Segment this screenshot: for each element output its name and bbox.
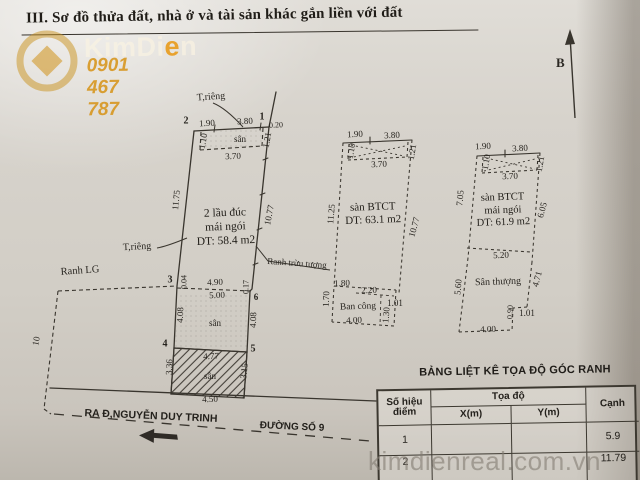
right-plot-area: DT: 61.9 m2 (461, 216, 545, 232)
measurement-label: 0.04 (180, 275, 189, 289)
measurement-label: 4.50 (202, 394, 218, 405)
measurement-label: 1.90 (347, 129, 363, 140)
table-header-y: Y(m) (511, 405, 586, 424)
point-number: 2 (184, 116, 189, 127)
measurement-label: 7.05 (454, 190, 465, 207)
measurement-label: 4.90 (207, 277, 223, 288)
ranh-lg-label: Ranh LG (60, 264, 99, 278)
point-number: 3 (168, 275, 173, 286)
measurement-label: 3.80 (384, 130, 400, 141)
measurement-label: 1.21 (406, 143, 419, 160)
north-arrow-icon (565, 29, 575, 118)
measurement-label: 1.01 (519, 308, 535, 318)
measurement-label: 0.20 (269, 120, 283, 130)
logo-text-accent: e (164, 31, 180, 61)
measurement-label: 11.25 (325, 204, 337, 225)
measurement-label: 3.15 (238, 363, 250, 380)
measurement-label: 1.70 (321, 291, 332, 307)
table-header-x: X(m) (431, 406, 511, 425)
measurement-label: 1.10 (345, 142, 358, 159)
measurement-label: 4.08 (248, 312, 259, 328)
table-header-edge: Cạnh (586, 387, 639, 423)
measurement-label: 0.90 (505, 305, 514, 319)
measurement-label: sân (209, 318, 221, 328)
trieng-left-label: T,riêng (123, 241, 152, 253)
measurement-label: sân (234, 134, 246, 144)
table-header-point: Số hiệu điểm (378, 390, 432, 426)
site-watermark: kimdienreal.com.vn (368, 446, 601, 477)
north-indicator-label: B (556, 55, 565, 71)
scanned-land-survey-document: III. Sơ đồ thửa đất, nhà ở và tài sản kh… (0, 0, 640, 480)
measurement-label: 4.00 (480, 324, 496, 335)
measurement-label: 3.70 (502, 171, 518, 182)
measurement-label: 4.00 (346, 315, 362, 326)
road-name-secondary: ĐƯỜNG SỐ 9 (259, 420, 324, 434)
road-name-main: RA Đ,NGUYỄN DUY TRINH (84, 407, 217, 425)
measurement-label: sân (204, 371, 216, 381)
middle-plot-area: DT: 63.1 m2 (330, 213, 416, 229)
san-thuong-label: Sân thượng (475, 276, 521, 289)
point-number: 6 (254, 292, 259, 302)
ranh-truu-tuong-label: Ranh trừu tượng (267, 256, 327, 270)
measurement-label: 3.70 (371, 159, 387, 170)
measurement-label: 1.90 (475, 141, 491, 152)
measurement-label: 4.71 (530, 270, 544, 288)
right-plot-description: sàn BTCT mái ngói DT: 61.9 m2 (460, 191, 545, 232)
measurement-label: 1.21 (534, 155, 547, 172)
page-title: III. Sơ đồ thửa đất, nhà ở và tài sản kh… (26, 3, 476, 27)
measurement-label: 0.17 (242, 280, 251, 294)
point-number: 1 (260, 112, 265, 123)
point-number: 5 (251, 344, 256, 355)
measurement-label: 4.77 (203, 351, 219, 362)
logo-text-part2: n (180, 31, 198, 61)
measurement-label: 3.80 (237, 116, 253, 127)
measurement-label: 10 (30, 336, 41, 347)
ban-cong-label: Ban công (340, 301, 376, 312)
measurement-label: 5.20 (493, 250, 509, 261)
measurement-label: 3.36 (164, 359, 175, 375)
measurement-label: 11.75 (170, 190, 182, 211)
coordinate-table-title: BẢNG LIỆT KÊ TỌA ĐỘ GÓC RANH (395, 363, 635, 379)
left-plot-description: 2 lầu đúc mái ngói DT: 58.4 m2 (182, 206, 268, 250)
measurement-label: 2.20 (361, 285, 377, 296)
measurement-label: 1.80 (334, 278, 350, 289)
measurement-label: 1.10 (197, 132, 210, 149)
measurement-label: 1.90 (199, 118, 215, 129)
measurement-label: 5.00 (209, 290, 225, 301)
measurement-label: 1.21 (261, 131, 274, 148)
dashed-right-plot (459, 153, 540, 332)
measurement-label: 3.80 (512, 143, 528, 154)
middle-plot-description: sàn BTCT DT: 63.1 m2 (330, 200, 417, 229)
logo-phone-number: 0901 467 787 (86, 55, 129, 122)
left-plot-area: DT: 58.4 m2 (183, 233, 268, 250)
measurement-label: 5.60 (452, 279, 463, 296)
measurement-label: 4.08 (175, 307, 186, 323)
trieng-top-label: T,riêng (196, 91, 225, 104)
measurement-label: 3.70 (225, 151, 241, 162)
measurement-label: 1.30 (380, 307, 391, 324)
point-number: 4 (163, 339, 168, 350)
measurement-label: 1.10 (480, 153, 493, 170)
road-direction-arrow-icon (139, 428, 178, 443)
measurement-label: 10.77 (262, 204, 276, 226)
